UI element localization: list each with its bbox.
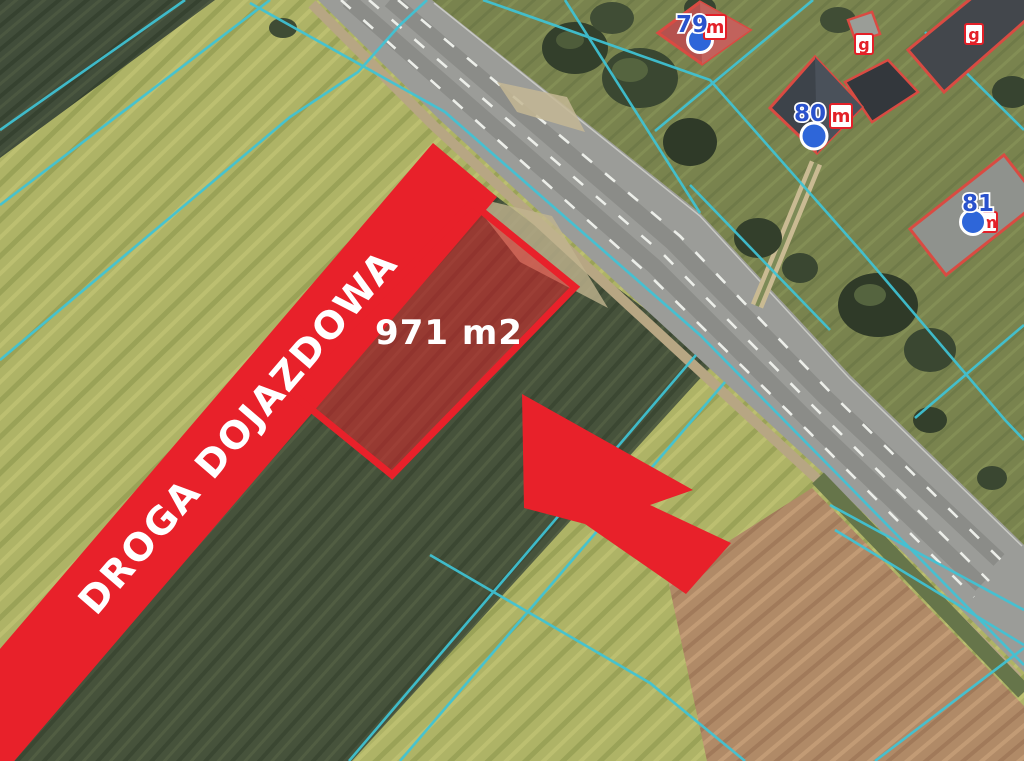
marker-letter: g [968, 25, 979, 44]
label-house-81: m 81 [961, 191, 998, 235]
address-number: 79 [676, 12, 708, 38]
marker-letter: m [832, 106, 851, 127]
plot-area-label: 971 m2 [375, 313, 523, 353]
marker-letter: g [858, 35, 869, 54]
map-layers: 971 m2 DROGA DOJAZDOWA m 79 m 80 m 81 g [0, 0, 1024, 761]
address-number: 81 [962, 191, 994, 217]
aerial-plot-map: 971 m2 DROGA DOJAZDOWA m 79 m 80 m 81 g [0, 0, 1024, 761]
address-number: 80 [794, 101, 826, 127]
label-outbuilding-1: g [855, 34, 873, 54]
label-outbuilding-2: g [965, 24, 983, 44]
marker-letter: m [706, 17, 725, 38]
